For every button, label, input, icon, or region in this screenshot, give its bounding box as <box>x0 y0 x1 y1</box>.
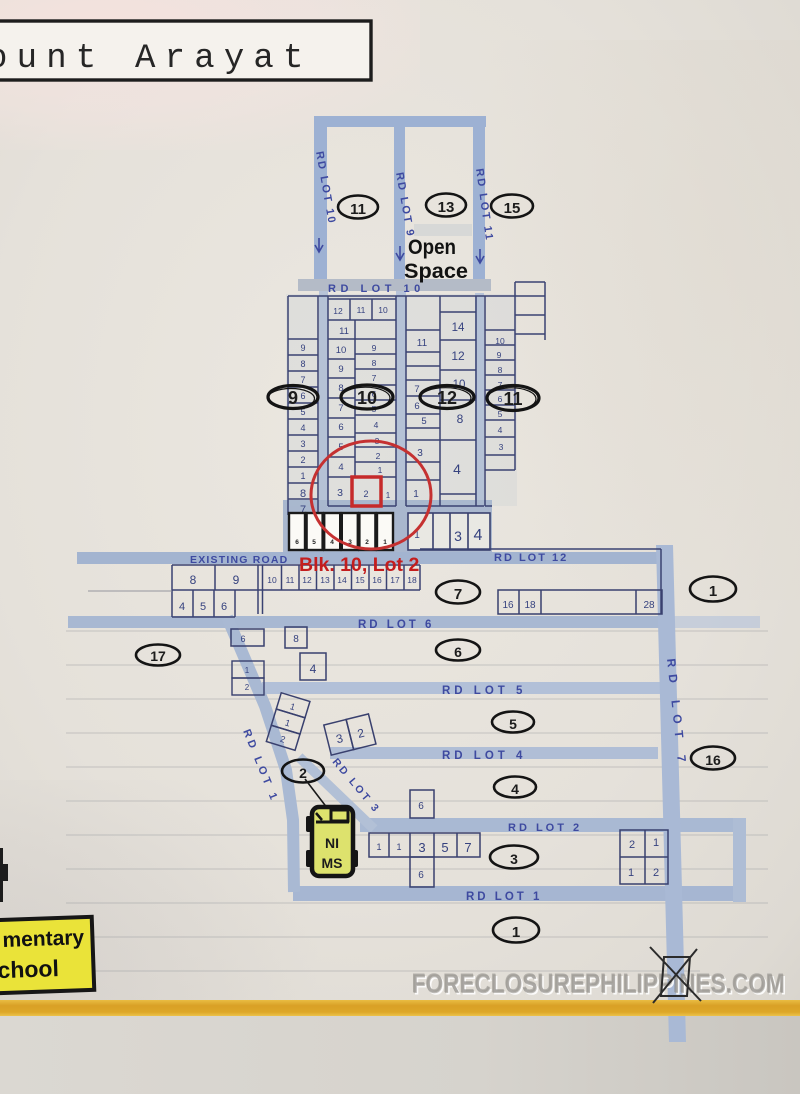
svg-text:1: 1 <box>396 842 401 852</box>
svg-text:13: 13 <box>320 575 330 585</box>
svg-text:7: 7 <box>464 840 471 855</box>
svg-text:7: 7 <box>372 373 377 383</box>
svg-text:6: 6 <box>414 401 419 412</box>
svg-text:7: 7 <box>338 403 343 414</box>
svg-text:8: 8 <box>293 634 299 645</box>
svg-text:4: 4 <box>374 420 379 430</box>
svg-text:12: 12 <box>437 388 457 408</box>
svg-text:6: 6 <box>295 539 299 546</box>
svg-text:9: 9 <box>233 573 240 587</box>
svg-text:2: 2 <box>365 539 369 546</box>
svg-text:4: 4 <box>330 539 334 546</box>
svg-text:12: 12 <box>451 349 465 363</box>
svg-text:FORECLOSUREPHILIPPINES.COM: FORECLOSUREPHILIPPINES.COM <box>412 969 785 999</box>
svg-text:13: 13 <box>438 199 455 216</box>
svg-text:RD LOT 1: RD LOT 1 <box>466 891 542 903</box>
svg-text:7: 7 <box>454 586 462 603</box>
svg-text:1: 1 <box>378 465 383 475</box>
svg-text:1: 1 <box>628 867 634 879</box>
svg-text:2: 2 <box>300 455 305 465</box>
svg-text:3: 3 <box>300 439 305 449</box>
svg-text:4: 4 <box>310 662 317 676</box>
svg-text:12: 12 <box>302 575 312 585</box>
svg-text:Open: Open <box>408 236 456 259</box>
svg-text:8: 8 <box>190 573 197 587</box>
svg-text:4: 4 <box>338 462 343 473</box>
svg-text:6: 6 <box>418 801 424 812</box>
svg-text:4: 4 <box>300 423 305 433</box>
svg-text:17: 17 <box>390 575 400 585</box>
svg-text:Blk. 10, Lot 2: Blk. 10, Lot 2 <box>299 554 419 576</box>
svg-text:4: 4 <box>453 461 461 477</box>
svg-text:6: 6 <box>454 644 462 660</box>
svg-text:3: 3 <box>418 840 425 855</box>
svg-text:18: 18 <box>407 575 417 585</box>
svg-text:10: 10 <box>378 305 388 315</box>
svg-text:EXISTING ROAD: EXISTING ROAD <box>190 554 288 566</box>
svg-text:8: 8 <box>300 488 306 500</box>
svg-text:11: 11 <box>350 201 366 218</box>
svg-text:RD LOT 12: RD LOT 12 <box>494 552 568 564</box>
svg-text:1: 1 <box>512 924 520 941</box>
svg-text:16: 16 <box>705 752 721 768</box>
svg-text:15: 15 <box>355 575 365 585</box>
svg-text:NI: NI <box>325 835 339 851</box>
svg-text:4: 4 <box>511 781 519 797</box>
svg-text:4: 4 <box>179 601 185 613</box>
svg-text:10: 10 <box>495 336 505 346</box>
svg-text:3: 3 <box>499 442 504 452</box>
svg-text:9: 9 <box>300 343 305 353</box>
svg-text:10: 10 <box>267 575 277 585</box>
svg-text:1: 1 <box>709 583 717 600</box>
svg-text:10: 10 <box>357 388 377 408</box>
svg-text:5: 5 <box>312 539 316 546</box>
svg-text:2: 2 <box>363 489 368 499</box>
svg-text:18: 18 <box>524 600 536 611</box>
svg-text:RD LOT 4: RD LOT 4 <box>442 750 526 762</box>
svg-text:1: 1 <box>386 491 391 500</box>
svg-text:15: 15 <box>504 200 521 217</box>
svg-text:3: 3 <box>417 448 423 459</box>
svg-text:8: 8 <box>300 359 305 369</box>
svg-text:1: 1 <box>245 666 250 675</box>
svg-text:3: 3 <box>337 487 343 499</box>
svg-text:mentary: mentary <box>2 926 85 952</box>
svg-text:1: 1 <box>300 471 305 481</box>
svg-text:16: 16 <box>502 600 514 611</box>
svg-text:4: 4 <box>474 527 483 544</box>
svg-text:9: 9 <box>497 350 502 360</box>
svg-text:28: 28 <box>643 600 655 611</box>
svg-text:11: 11 <box>503 389 522 409</box>
svg-text:1: 1 <box>653 837 659 849</box>
svg-text:14: 14 <box>337 575 347 585</box>
svg-text:16: 16 <box>372 575 382 585</box>
svg-text:8: 8 <box>498 365 503 375</box>
svg-text:5: 5 <box>441 840 448 855</box>
svg-text:3: 3 <box>454 528 462 544</box>
svg-text:11: 11 <box>339 326 349 337</box>
svg-text:11: 11 <box>417 338 428 349</box>
svg-text:MS: MS <box>322 855 343 871</box>
svg-text:RD LOT 6: RD LOT 6 <box>358 619 434 631</box>
svg-text:RD LOT 10: RD LOT 10 <box>328 283 425 295</box>
svg-text:11: 11 <box>286 575 295 585</box>
svg-text:1: 1 <box>413 489 419 500</box>
svg-text:1: 1 <box>383 539 387 546</box>
svg-text:6: 6 <box>221 601 227 613</box>
svg-text:ount Arayat: ount Arayat <box>0 40 313 78</box>
svg-text:5: 5 <box>509 716 517 732</box>
svg-text:2: 2 <box>376 451 381 461</box>
svg-text:2: 2 <box>245 683 250 692</box>
svg-text:Space: Space <box>404 260 468 283</box>
svg-text:7: 7 <box>414 384 419 395</box>
svg-text:6: 6 <box>300 391 305 401</box>
svg-text:11: 11 <box>357 305 366 315</box>
svg-text:1: 1 <box>376 842 381 852</box>
svg-text:6: 6 <box>418 870 424 881</box>
svg-text:RD LOT 2: RD LOT 2 <box>508 822 582 834</box>
svg-text:5: 5 <box>200 601 206 613</box>
svg-text:7: 7 <box>300 375 305 385</box>
svg-text:2: 2 <box>653 867 659 879</box>
svg-text:9: 9 <box>338 364 343 375</box>
svg-text:17: 17 <box>150 648 166 664</box>
svg-text:3: 3 <box>510 851 518 867</box>
svg-text:chool: chool <box>0 955 59 983</box>
svg-text:14: 14 <box>452 322 465 334</box>
svg-text:6: 6 <box>498 394 503 404</box>
svg-text:RD LOT 5: RD LOT 5 <box>442 685 526 697</box>
svg-text:8: 8 <box>372 358 377 368</box>
svg-text:8: 8 <box>457 412 464 426</box>
svg-text:4: 4 <box>498 425 503 435</box>
svg-text:6: 6 <box>240 634 245 644</box>
svg-text:12: 12 <box>333 306 343 316</box>
svg-text:6: 6 <box>338 422 343 433</box>
svg-text:9: 9 <box>372 343 377 353</box>
svg-text:10: 10 <box>336 345 347 356</box>
svg-text:5: 5 <box>421 416 426 427</box>
svg-text:9: 9 <box>288 388 298 408</box>
svg-text:2: 2 <box>299 765 307 781</box>
svg-text:2: 2 <box>629 839 635 851</box>
